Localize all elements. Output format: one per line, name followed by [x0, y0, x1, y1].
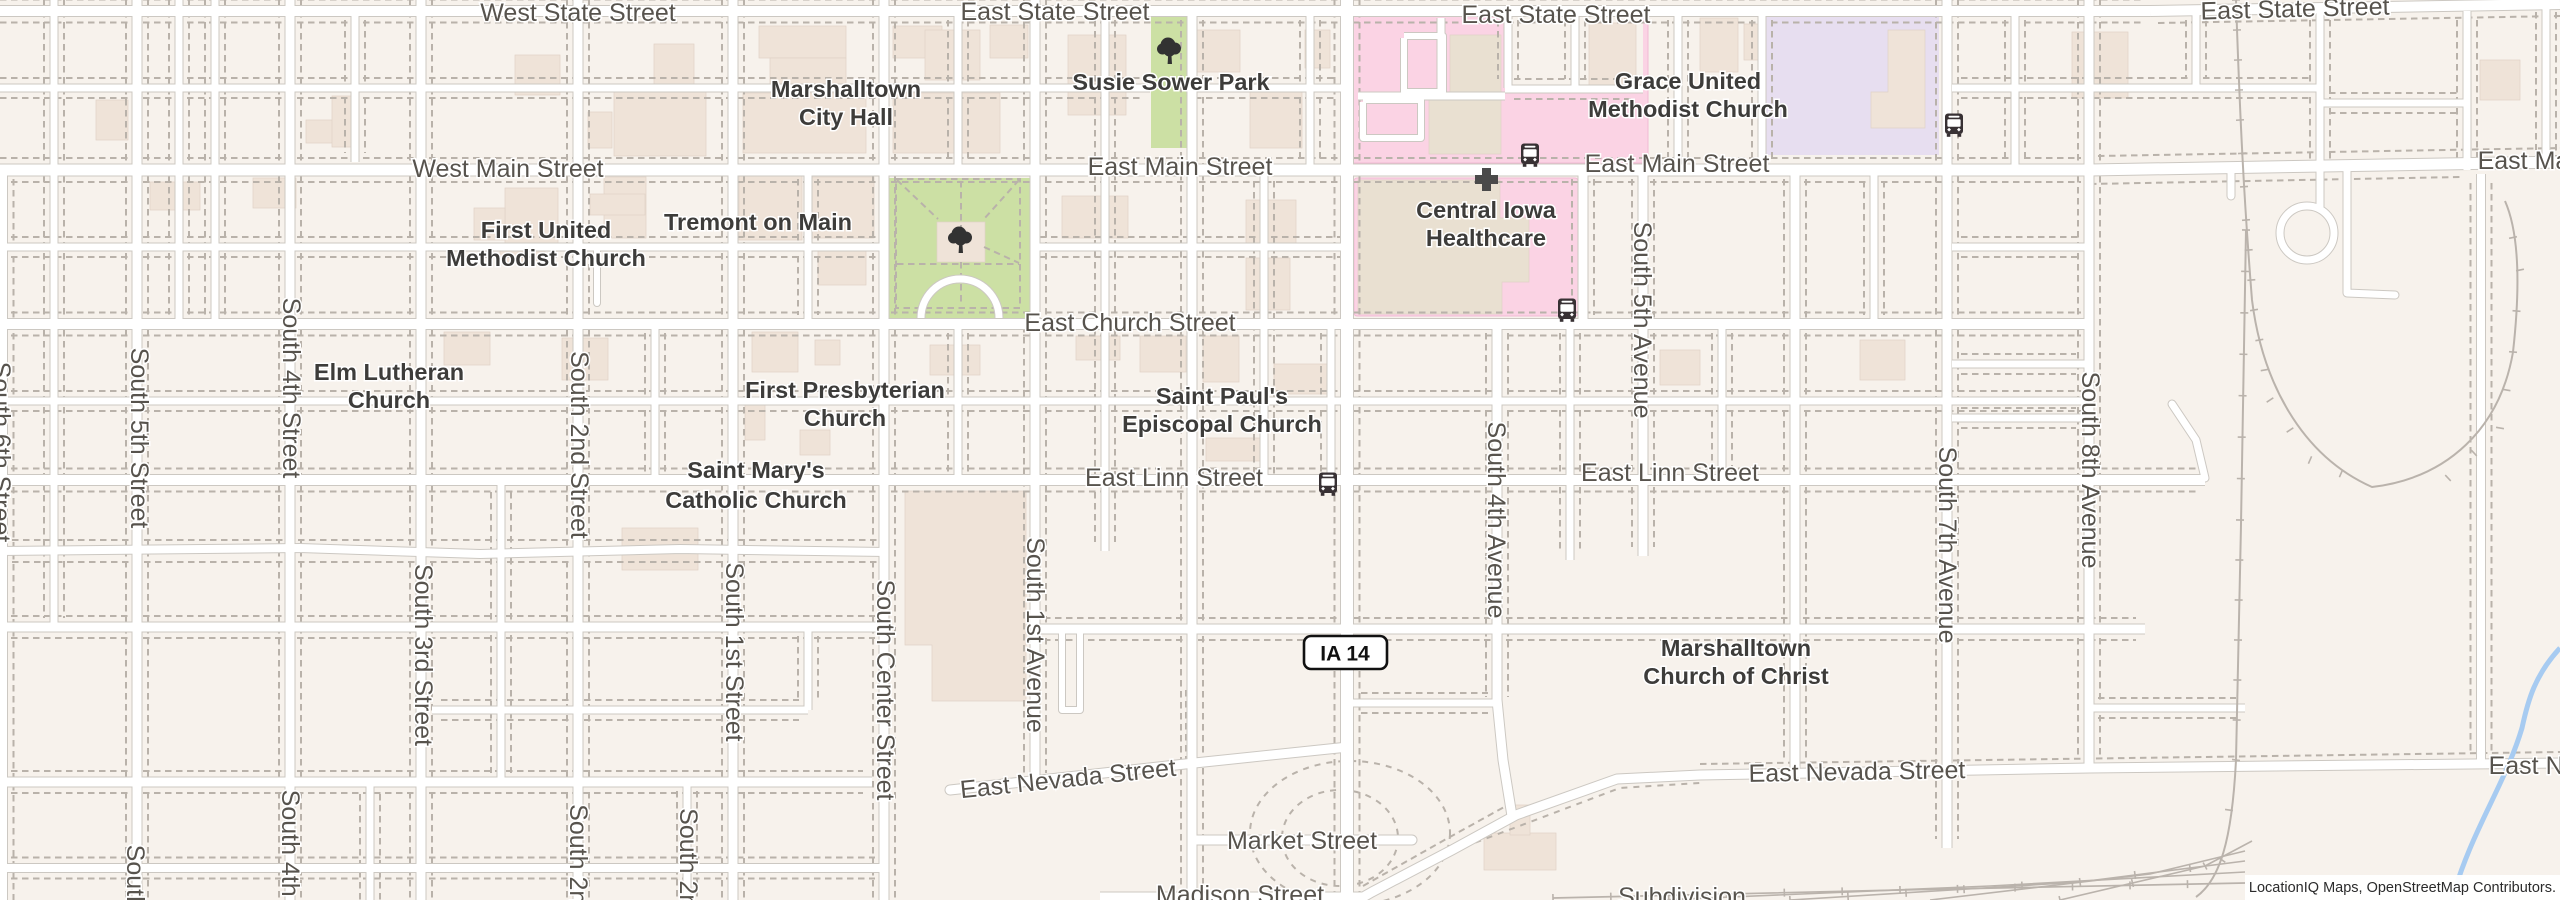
svg-text:Subdivision: Subdivision	[1618, 883, 1746, 900]
svg-text:East State Street: East State Street	[961, 0, 1150, 26]
svg-text:East Main Street: East Main Street	[1585, 150, 1770, 178]
svg-text:Elm Lutheran: Elm Lutheran	[314, 359, 464, 385]
svg-text:Central Iowa: Central Iowa	[1416, 197, 1557, 223]
svg-text:Church of Christ: Church of Christ	[1643, 663, 1829, 689]
svg-text:East Church Street: East Church Street	[1024, 309, 1235, 337]
svg-text:Catholic Church: Catholic Church	[665, 487, 846, 513]
svg-text:South 7th Avenue: South 7th Avenue	[1933, 447, 1961, 644]
svg-text:Episcopal Church: Episcopal Church	[1122, 411, 1322, 437]
svg-text:East Linn Street: East Linn Street	[1085, 464, 1263, 492]
svg-text:South Center Street: South Center Street	[871, 580, 899, 801]
svg-text:South 5th Avenue: South 5th Avenue	[1628, 222, 1656, 419]
svg-text:Healthcare: Healthcare	[1426, 225, 1546, 251]
svg-text:Saint Mary's: Saint Mary's	[687, 457, 825, 483]
svg-text:South 2nd Street: South 2nd Street	[564, 804, 592, 900]
svg-text:South 2nd Street: South 2nd Street	[674, 808, 702, 900]
svg-text:Church: Church	[348, 387, 430, 413]
svg-text:Methodist Church: Methodist Church	[1588, 96, 1788, 122]
svg-text:Grace United: Grace United	[1615, 68, 1761, 94]
svg-text:South 5th Street: South 5th Street	[121, 845, 149, 900]
svg-text:South 5th Street: South 5th Street	[125, 348, 153, 529]
svg-text:South 1st Avenue: South 1st Avenue	[1021, 537, 1049, 733]
svg-text:West State Street: West State Street	[480, 0, 676, 27]
svg-text:Methodist Church: Methodist Church	[446, 245, 646, 271]
svg-text:Tremont on Main: Tremont on Main	[664, 209, 852, 235]
svg-text:East Main Street: East Main Street	[1088, 153, 1273, 181]
svg-text:Market Street: Market Street	[1227, 827, 1377, 855]
svg-text:First Presbyterian: First Presbyterian	[745, 377, 945, 403]
svg-text:Madison Street: Madison Street	[1156, 881, 1324, 900]
svg-text:South 3rd Street: South 3rd Street	[409, 564, 437, 746]
svg-text:City Hall: City Hall	[799, 104, 893, 130]
svg-text:South 4th Avenue: South 4th Avenue	[1482, 422, 1510, 619]
svg-text:Saint Paul's: Saint Paul's	[1156, 383, 1288, 409]
svg-text:IA 14: IA 14	[1320, 643, 1370, 666]
svg-text:South 2nd Street: South 2nd Street	[565, 351, 593, 539]
svg-text:South 4th Street: South 4th Street	[277, 298, 305, 479]
svg-text:East State Street: East State Street	[1462, 1, 1651, 29]
svg-text:LocationIQ Maps, OpenStreetMap: LocationIQ Maps, OpenStreetMap Contribut…	[2249, 880, 2556, 896]
svg-text:East Nevada Street: East Nevada Street	[1748, 756, 1965, 788]
svg-text:West Main Street: West Main Street	[412, 155, 603, 183]
svg-text:East Linn Street: East Linn Street	[1581, 459, 1759, 487]
svg-text:South 4th Street: South 4th Street	[276, 790, 304, 900]
svg-text:Marshalltown: Marshalltown	[771, 76, 921, 102]
svg-text:East Main Street: East Main Street	[2478, 147, 2560, 175]
svg-text:East Nevada Street: East Nevada Street	[2489, 752, 2560, 780]
svg-text:Susie Sower Park: Susie Sower Park	[1072, 69, 1270, 95]
svg-text:Church: Church	[804, 405, 886, 431]
svg-text:First United: First United	[481, 217, 612, 243]
svg-text:South 8th Avenue: South 8th Avenue	[2076, 372, 2104, 569]
svg-text:South 1st Street: South 1st Street	[720, 562, 748, 741]
svg-text:Marshalltown: Marshalltown	[1661, 635, 1811, 661]
svg-text:South 6th Street: South 6th Street	[0, 362, 15, 543]
